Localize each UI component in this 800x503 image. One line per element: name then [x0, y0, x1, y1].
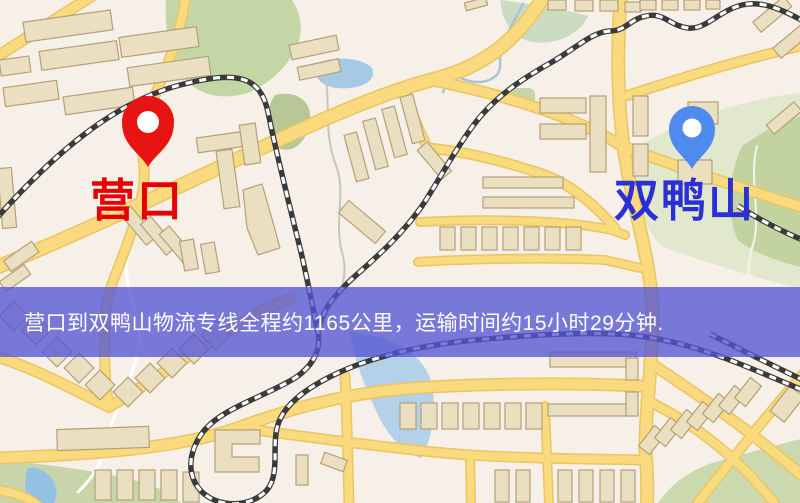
map-image: 营口 双鸭山: [0, 0, 800, 503]
banner-text: 营口到双鸭山物流专线全程约1165公里，运输时间约15小时29分钟.: [24, 307, 664, 337]
destination-label: 双鸭山: [614, 175, 755, 226]
map-container: 营口 双鸭山 营口到双鸭山物流专线全程约1165公里，运输时间约15小时29分钟…: [0, 0, 800, 503]
info-banner: 营口到双鸭山物流专线全程约1165公里，运输时间约15小时29分钟.: [0, 287, 800, 357]
origin-label: 营口: [90, 175, 184, 226]
